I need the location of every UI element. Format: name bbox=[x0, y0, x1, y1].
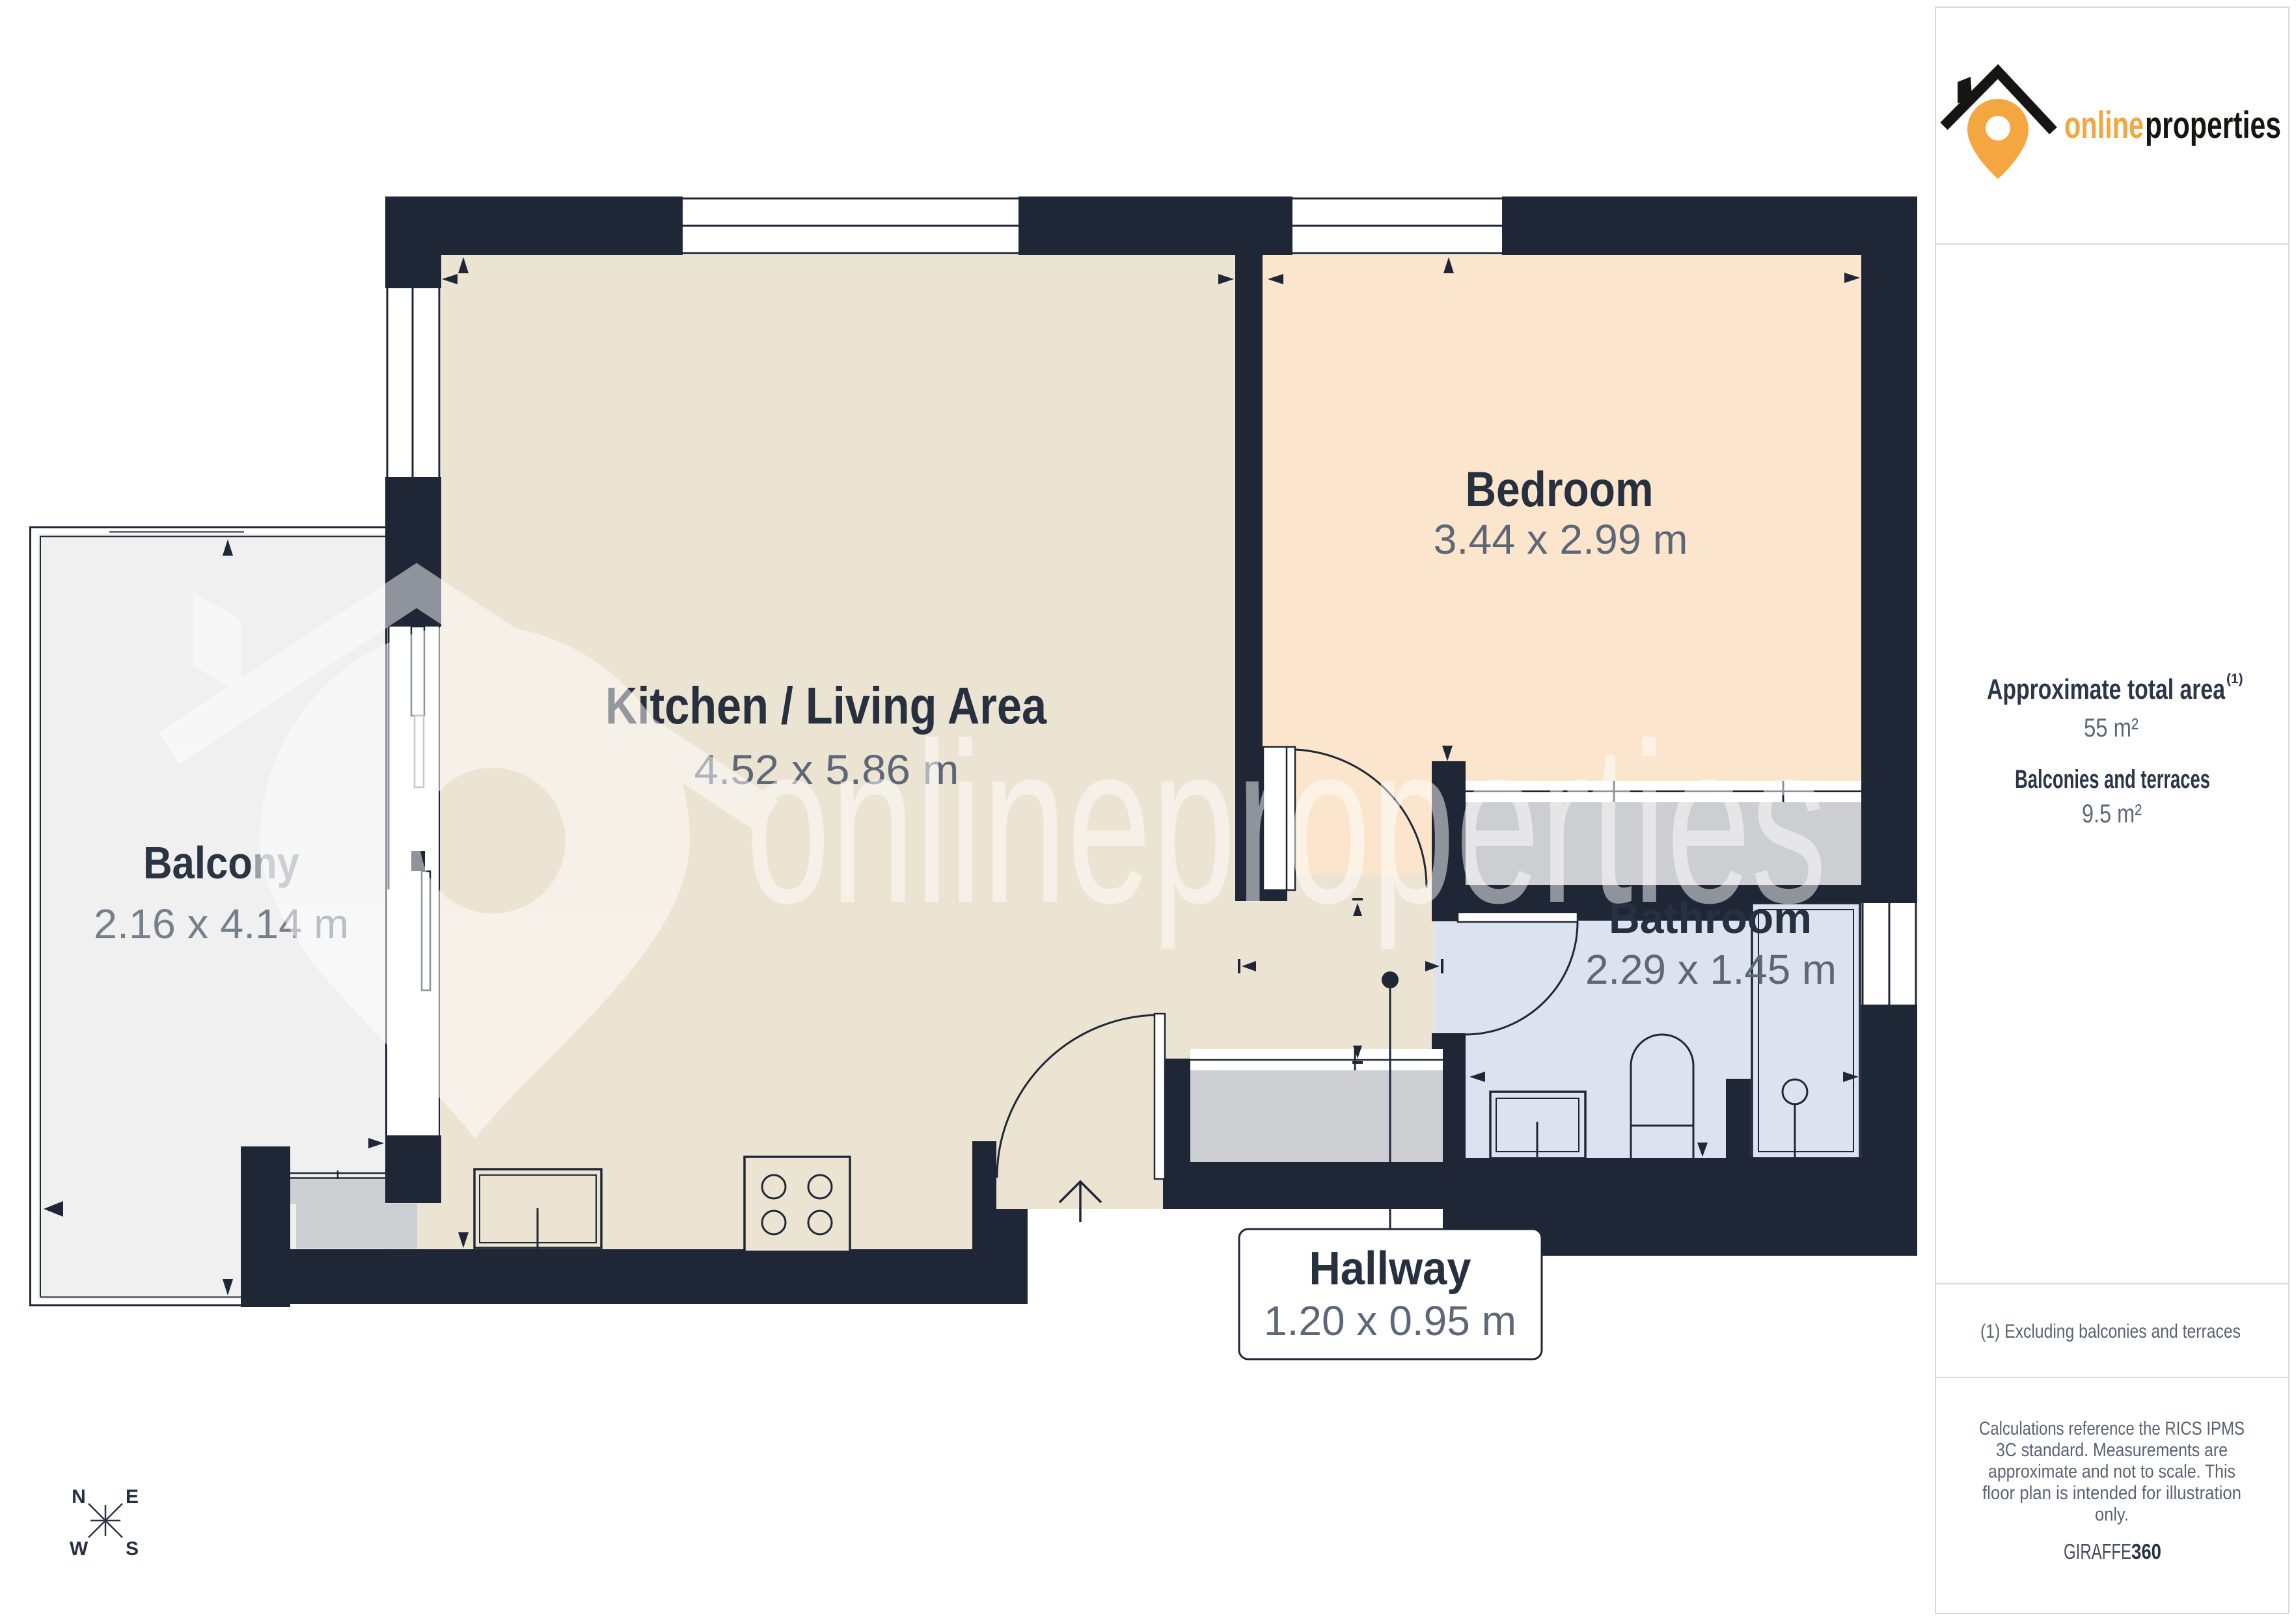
svg-text:Balconies and terraces: Balconies and terraces bbox=[2015, 765, 2210, 794]
svg-text:2.29 x 1.45 m: 2.29 x 1.45 m bbox=[1585, 946, 1837, 993]
svg-text:GIRAFFE: GIRAFFE bbox=[2064, 1539, 2131, 1563]
svg-text:(1): (1) bbox=[2226, 671, 2243, 686]
svg-text:Calculations reference the RIC: Calculations reference the RICS IPMS bbox=[1979, 1418, 2245, 1439]
svg-text:Approximate total area: Approximate total area bbox=[1987, 673, 2225, 705]
svg-text:2.16 x 4.14 m: 2.16 x 4.14 m bbox=[94, 900, 349, 947]
svg-text:Bathroom: Bathroom bbox=[1609, 894, 1812, 943]
svg-text:Balcony: Balcony bbox=[143, 837, 299, 888]
svg-text:Kitchen / Living Area: Kitchen / Living Area bbox=[605, 677, 1046, 735]
svg-text:properties: properties bbox=[2145, 104, 2281, 146]
svg-text:1.20 x 0.95 m: 1.20 x 0.95 m bbox=[1264, 1297, 1516, 1344]
svg-text:Bedroom: Bedroom bbox=[1466, 462, 1654, 517]
svg-text:only.: only. bbox=[2095, 1504, 2129, 1525]
svg-text:E: E bbox=[126, 1486, 139, 1508]
svg-text:3.44 x 2.99 m: 3.44 x 2.99 m bbox=[1434, 516, 1688, 563]
svg-text:N: N bbox=[72, 1486, 86, 1508]
svg-text:55 m²: 55 m² bbox=[2084, 714, 2139, 742]
svg-text:3C standard. Measurements are: 3C standard. Measurements are bbox=[1996, 1440, 2228, 1461]
svg-text:9.5 m²: 9.5 m² bbox=[2082, 800, 2142, 828]
svg-text:Hallway: Hallway bbox=[1309, 1243, 1471, 1295]
svg-text:floor plan is intended for ill: floor plan is intended for illustration bbox=[1982, 1483, 2241, 1504]
svg-text:S: S bbox=[126, 1538, 139, 1560]
svg-text:W: W bbox=[70, 1538, 89, 1560]
svg-text:(1) Excluding balconies and te: (1) Excluding balconies and terraces bbox=[1980, 1321, 2241, 1342]
svg-text:360: 360 bbox=[2131, 1539, 2161, 1563]
svg-text:online: online bbox=[2064, 104, 2144, 146]
svg-text:approximate and not to scale.: approximate and not to scale. This bbox=[1988, 1461, 2235, 1482]
svg-text:4.52 x 5.86 m: 4.52 x 5.86 m bbox=[694, 746, 959, 793]
